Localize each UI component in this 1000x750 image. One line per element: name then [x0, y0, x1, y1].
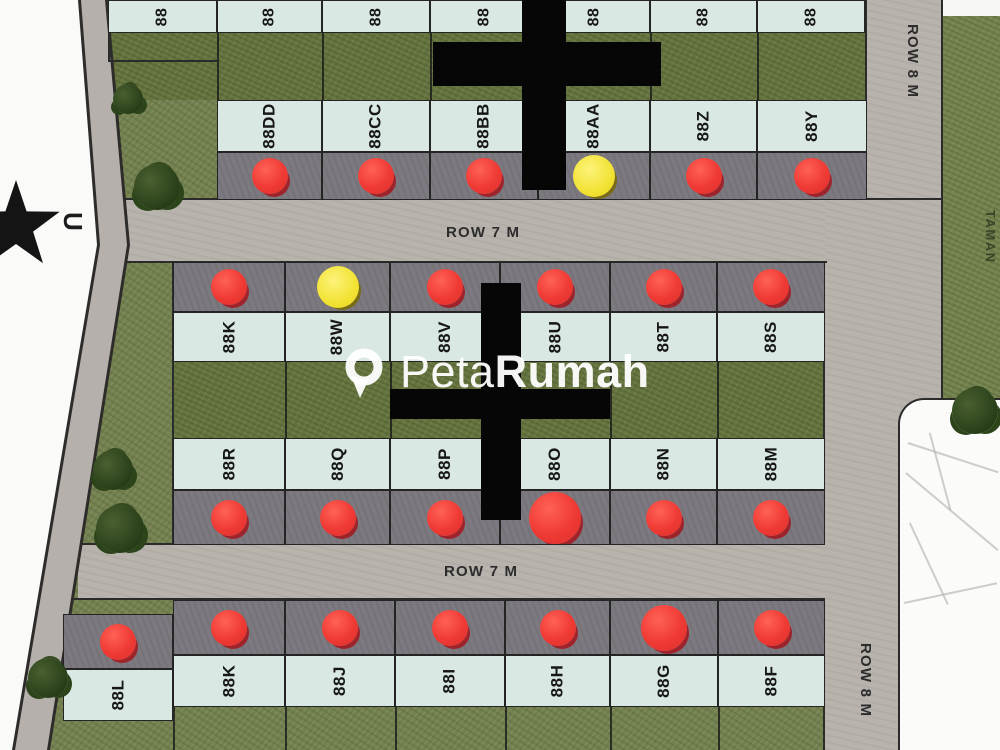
plot-divider [505, 707, 507, 750]
plot-divider [757, 33, 759, 100]
survey-line [908, 442, 999, 473]
redaction-cross-top-horizontal [433, 42, 661, 86]
park-taman [943, 16, 1000, 400]
plot-label: 88 [153, 7, 171, 26]
status-dot [320, 500, 356, 536]
status-dot [753, 500, 789, 536]
status-dot [211, 610, 247, 646]
status-dot [529, 492, 581, 544]
block-outline [108, 60, 217, 62]
tree [113, 84, 143, 114]
plot-label: 88 [585, 7, 603, 26]
plot-label: 88H [548, 665, 568, 698]
plot-divider [717, 362, 719, 438]
survey-line [904, 582, 997, 603]
status-dot [466, 158, 502, 194]
status-dot [686, 158, 722, 194]
tree [134, 164, 180, 210]
redaction-cross-top-vertical [522, 0, 566, 190]
plot-label: 88DD [260, 103, 280, 148]
plot-88h: 88H [505, 600, 610, 707]
status-dot [211, 500, 247, 536]
plot-label: 88J [330, 666, 350, 696]
tree [96, 505, 144, 553]
status-dot [646, 500, 682, 536]
plot-label: 88K [219, 665, 239, 698]
status-dot [322, 610, 358, 646]
status-dot [427, 500, 463, 536]
plot-label: 88 [260, 7, 278, 26]
plot-label: 88 [802, 7, 820, 26]
plot-label: 88Y [802, 110, 822, 142]
plot-divider [217, 33, 219, 60]
road-label-row7m-top: ROW 7 M [446, 224, 520, 241]
plot-88y: 88Y [757, 100, 867, 200]
plot-label: 88 [694, 7, 712, 26]
plot-88f: 88F [718, 600, 825, 707]
plot-88cc: 88CC [322, 100, 430, 200]
road-label-row7m-bottom: ROW 7 M [444, 563, 518, 580]
plot-label: 88Q [327, 447, 347, 481]
plot-divider [718, 707, 720, 750]
plot-partial-6: 88 [650, 0, 757, 33]
plot-88l: 88L [63, 614, 173, 721]
offplan-white-area [898, 398, 1000, 750]
plot-label: 88P [435, 448, 455, 480]
plot-88m: 88M [717, 438, 825, 545]
plot-88r: 88R [173, 438, 285, 545]
plot-divider [217, 60, 219, 100]
plot-88i: 88I [395, 600, 505, 707]
plot-label: 88M [761, 447, 781, 482]
plot-88q: 88Q [285, 438, 390, 545]
plot-label: 88T [653, 322, 673, 353]
plot-label: 88O [545, 447, 565, 481]
plot-divider [395, 707, 397, 750]
white-corner-top-right [943, 0, 1000, 16]
plot-label: 88CC [366, 103, 386, 148]
survey-line [909, 522, 948, 604]
status-dot [754, 610, 790, 646]
status-dot [358, 158, 394, 194]
plot-label: 88L [108, 680, 128, 711]
road-label-row8m-top: ROW 8 M [904, 24, 921, 98]
status-dot [252, 158, 288, 194]
road-row8m-mid [825, 200, 943, 418]
status-dot [540, 610, 576, 646]
map-pin-icon [338, 344, 390, 400]
plot-divider [173, 707, 175, 750]
plot-label: 88AA [584, 103, 604, 148]
road-row7m-top [103, 200, 943, 263]
plot-label: 88G [654, 664, 674, 698]
plot-divider [430, 33, 432, 100]
plot-divider [322, 33, 324, 100]
plot-divider [610, 707, 612, 750]
plot-label: 88 [475, 7, 493, 26]
survey-line [906, 472, 999, 550]
status-dot [100, 624, 136, 660]
plot-divider [285, 707, 287, 750]
survey-line [929, 433, 951, 511]
status-dot [753, 269, 789, 305]
plot-label: 88K [219, 321, 239, 354]
plot-88k-middle: 88K [173, 262, 285, 362]
status-dot [794, 158, 830, 194]
status-dot [432, 610, 468, 646]
watermark-text: PetaRumah [400, 346, 650, 398]
plot-88n: 88N [610, 438, 717, 545]
plot-partial-7: 88 [757, 0, 865, 33]
watermark-logo: PetaRumah [338, 344, 650, 400]
plot-88j: 88J [285, 600, 395, 707]
plot-88z: 88Z [650, 100, 757, 200]
status-dot [573, 155, 615, 197]
status-dot [646, 269, 682, 305]
plot-label: 88F [761, 666, 781, 697]
status-dot [211, 269, 247, 305]
plot-88s: 88S [717, 262, 825, 362]
plot-divider [285, 362, 287, 438]
tree [28, 658, 68, 698]
plot-label: 88S [761, 321, 781, 353]
tree [952, 388, 998, 434]
status-dot [537, 269, 573, 305]
plot-partial-3: 88 [322, 0, 430, 33]
status-dot [317, 266, 359, 308]
plot-label: 88I [440, 668, 460, 693]
plot-label: 88 [367, 7, 385, 26]
park-label-taman: TAMAN [983, 210, 998, 263]
plot-88dd: 88DD [217, 100, 322, 200]
plot-label: 88BB [474, 103, 494, 148]
road-label-row8m-bottom: ROW 8 M [857, 643, 874, 717]
plot-88g: 88G [610, 600, 718, 707]
plot-partial-2: 88 [217, 0, 322, 33]
plot-label: 88R [219, 448, 239, 481]
plot-label: 88Z [693, 111, 713, 142]
status-dot [641, 605, 687, 651]
status-dot [427, 269, 463, 305]
plot-88k-bottom: 88K [173, 600, 285, 707]
site-plan-map: 88 88 88 88 88 88 88 88DD 88CC 88BB 88AA… [0, 0, 1000, 750]
tree [93, 450, 133, 490]
plot-label: 88N [654, 448, 674, 481]
compass-north-label: U [57, 212, 88, 231]
plot-partial-1: 88 [108, 0, 217, 33]
